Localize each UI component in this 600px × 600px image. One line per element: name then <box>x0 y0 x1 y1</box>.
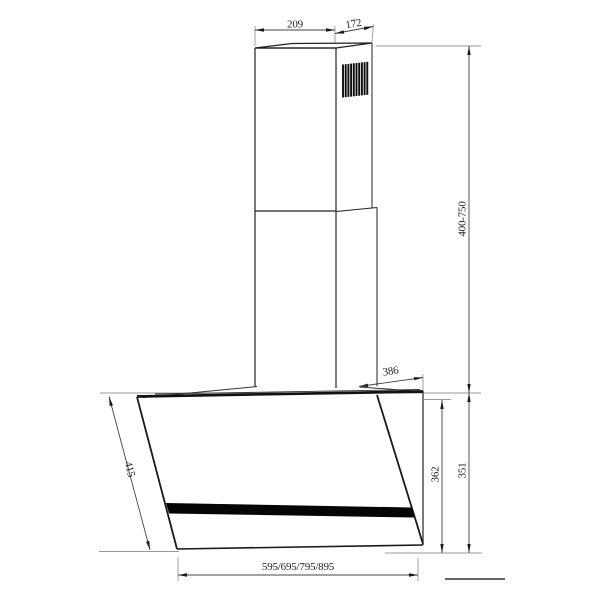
hood-body <box>137 387 423 550</box>
drawing-svg: 209 172 400-750 386 362 351 415 595/695/… <box>0 0 600 600</box>
dim-glass-length-label: 415 <box>122 460 138 479</box>
vent-grille-icon <box>343 62 367 98</box>
dim-hood-overall-height-label: 351 <box>457 463 469 479</box>
chimney-junction-side <box>336 208 377 212</box>
chimney-top-face <box>255 43 372 48</box>
dim-width-options-label: 595/695/795/895 <box>262 561 335 573</box>
hood-bottom-edge <box>177 545 423 549</box>
dimension-lines <box>109 27 505 580</box>
glass-right-edge <box>377 395 423 544</box>
glass-left-edge <box>137 397 177 549</box>
dim-chimney-width-label: 209 <box>287 19 304 31</box>
dim-chimney-height-label: 400-750 <box>457 201 469 237</box>
ext-chimney-back <box>372 25 374 43</box>
extension-lines <box>99 25 482 582</box>
dim-line-386 <box>359 378 423 387</box>
glass-strip <box>166 503 415 518</box>
hood-technical-drawing: 209 172 400-750 386 362 351 415 595/695/… <box>0 0 600 600</box>
dim-hood-top-depth-label: 386 <box>382 364 400 378</box>
dim-hood-back-height-label: 362 <box>430 467 442 483</box>
dimension-labels: 209 172 400-750 386 362 351 415 595/695/… <box>122 17 469 573</box>
